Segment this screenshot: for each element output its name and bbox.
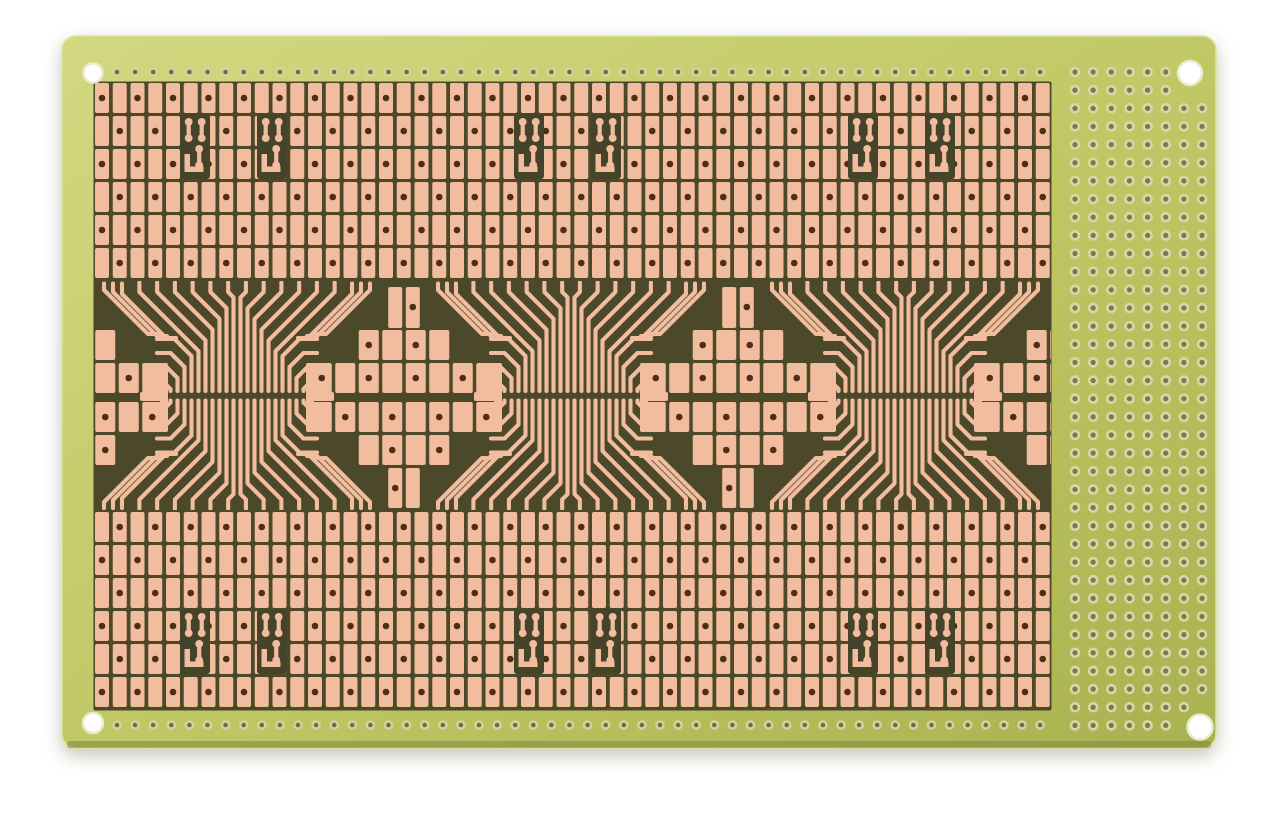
perf-pad-hole (1145, 596, 1150, 601)
pad-drill-hole (383, 161, 390, 168)
perf-pad-hole (1145, 723, 1150, 728)
pad-drill-hole (699, 375, 706, 382)
perf-pad-hole (1091, 269, 1096, 274)
solder-pad (326, 545, 340, 575)
pad-drill-hole (418, 227, 425, 234)
pad-drill-hole (276, 689, 283, 696)
pad-drill-hole (318, 375, 325, 382)
edge-pad-hole (965, 70, 970, 75)
pad-drill-hole (347, 227, 354, 234)
solder-pad (929, 83, 943, 113)
solder-pad (983, 512, 997, 542)
perf-pad-hole (1091, 541, 1096, 546)
solder-pad (894, 215, 908, 245)
sot23-footprint (591, 609, 621, 674)
solder-pad (947, 512, 961, 542)
pad-drill-hole (933, 590, 940, 597)
pad-drill-hole (400, 524, 407, 531)
pad-drill-hole (631, 95, 638, 102)
solder-pad (95, 578, 109, 608)
pad-drill-hole (454, 227, 461, 234)
pad-drill-hole (152, 128, 159, 135)
solder-pad (308, 248, 322, 278)
perf-pad-hole (1163, 233, 1168, 238)
solder-pad (219, 83, 233, 113)
solder-pad (610, 545, 624, 575)
pad-drill-hole (471, 194, 478, 201)
perf-pad-hole (1127, 160, 1132, 165)
pad-drill-hole (649, 260, 656, 267)
solder-pad (663, 248, 677, 278)
perf-pad-hole (1072, 523, 1077, 528)
perf-pad-hole (1163, 596, 1168, 601)
pad-drill-hole (459, 375, 466, 382)
solder-pad (1000, 149, 1014, 179)
perf-pad-hole (1127, 723, 1132, 728)
solder-pad (237, 644, 251, 674)
pad-drill-hole (826, 128, 833, 135)
edge-pad-hole (1020, 70, 1025, 75)
pad-drill-hole (915, 161, 922, 168)
solder-pad (148, 611, 162, 641)
perf-pad-hole (1091, 559, 1096, 564)
solder-pad (521, 182, 535, 212)
pad-drill-hole (471, 524, 478, 531)
solder-pad (734, 182, 748, 212)
pad-drill-hole (31, 375, 38, 382)
solder-pad (699, 182, 713, 212)
pad-drill-hole (862, 260, 869, 267)
solder-pad (858, 677, 872, 707)
pad-drill-hole (365, 375, 372, 382)
perf-pad-hole (1091, 432, 1096, 437)
perf-pad-hole (1109, 88, 1114, 93)
pad-drill-hole (365, 656, 372, 663)
solder-pad (663, 116, 677, 146)
solder-pad (1018, 578, 1032, 608)
perf-pad-hole (1145, 650, 1150, 655)
perf-pad-hole (1163, 305, 1168, 310)
pad-drill-hole (170, 227, 177, 234)
pad-drill-hole (649, 128, 656, 135)
solder-pad (645, 545, 659, 575)
pad-drill-hole (312, 557, 319, 564)
perf-pad-hole (1091, 233, 1096, 238)
pad-drill-hole (793, 375, 800, 382)
solder-pad (397, 215, 411, 245)
pad-drill-hole (347, 689, 354, 696)
solder-pad (645, 677, 659, 707)
pad-drill-hole (826, 260, 833, 267)
pad-drill-hole (8, 414, 15, 421)
perf-pad-hole (1072, 632, 1077, 637)
pad-drill-hole (1010, 414, 1017, 421)
pad-drill-hole (746, 342, 753, 349)
pad-drill-hole (205, 95, 212, 102)
cluster-pad (25, 402, 45, 432)
perf-pad-hole (1072, 342, 1077, 347)
edge-pad-hole (368, 723, 373, 728)
solder-pad (894, 611, 908, 641)
pad-drill-hole (596, 689, 603, 696)
cluster-pad (429, 363, 449, 393)
perf-pad-hole (1145, 614, 1150, 619)
pad-drill-hole (507, 656, 514, 663)
solder-pad (539, 545, 553, 575)
solder-pad (823, 215, 837, 245)
solder-pad (131, 644, 145, 674)
perf-pad-hole (1072, 215, 1077, 220)
solder-pad (574, 149, 588, 179)
perf-pad-hole (1181, 251, 1186, 256)
sot23-footprint (180, 114, 210, 179)
edge-pad-hole (169, 70, 174, 75)
pad-drill-hole (791, 260, 798, 267)
pad-drill-hole (862, 524, 869, 531)
pad-drill-hole (170, 623, 177, 630)
pad-drill-hole (187, 590, 194, 597)
perf-pad-hole (1091, 215, 1096, 220)
perf-pad-hole (1091, 178, 1096, 183)
solder-pad (1036, 677, 1050, 707)
fanout-trace (0, 456, 27, 508)
cluster-pad (142, 363, 162, 393)
perf-pad-hole (1127, 360, 1132, 365)
pad-drill-hole (436, 194, 443, 201)
perf-pad-hole (1091, 88, 1096, 93)
perf-pad-hole (1127, 505, 1132, 510)
perf-pad-hole (1181, 287, 1186, 292)
cluster-pad (1027, 435, 1047, 465)
pad-drill-hole (968, 128, 975, 135)
perf-pad-hole (1109, 723, 1114, 728)
perf-pad-hole (1163, 578, 1168, 583)
solder-pad (361, 83, 375, 113)
edge-pad-hole (784, 723, 789, 728)
solder-pad (1000, 545, 1014, 575)
perf-pad-hole (1163, 196, 1168, 201)
pad-drill-hole (116, 590, 123, 597)
perf-pad-hole (1163, 414, 1168, 419)
pad-drill-hole (809, 95, 816, 102)
solder-pad (592, 182, 606, 212)
pad-drill-hole (578, 524, 585, 531)
pad-drill-hole (99, 689, 106, 696)
pad-drill-hole (613, 194, 620, 201)
solder-pad (592, 248, 606, 278)
perf-pad-hole (1127, 687, 1132, 692)
perf-pad-hole (1127, 287, 1132, 292)
perf-pad-hole (1181, 541, 1186, 546)
perf-pad-hole (1072, 106, 1077, 111)
pad-drill-hole (276, 95, 283, 102)
pad-drill-hole (454, 623, 461, 630)
solder-pad (574, 545, 588, 575)
solder-pad (965, 149, 979, 179)
perf-pad-hole (1109, 469, 1114, 474)
pad-drill-hole (489, 95, 496, 102)
pad-drill-hole (817, 414, 824, 421)
edge-pad-hole (314, 723, 319, 728)
pad-drill-hole (968, 656, 975, 663)
solder-pad (397, 545, 411, 575)
pad-drill-hole (738, 689, 745, 696)
perf-pad-hole (1091, 124, 1096, 129)
solder-pad (326, 149, 340, 179)
pad-drill-hole (329, 524, 336, 531)
pad-drill-hole (170, 95, 177, 102)
perf-pad-hole (1072, 487, 1077, 492)
solder-pad (1000, 677, 1014, 707)
pad-drill-hole (684, 656, 691, 663)
perf-pad-hole (1072, 596, 1077, 601)
pad-drill-hole (915, 227, 922, 234)
perf-pad-hole (1091, 723, 1096, 728)
pad-drill-hole (915, 557, 922, 564)
pad-drill-hole (205, 689, 212, 696)
solder-pad (663, 578, 677, 608)
edge-pad-hole (296, 70, 301, 75)
perf-pad-hole (1199, 287, 1204, 292)
perf-pad-hole (1145, 541, 1150, 546)
solder-pad (432, 83, 446, 113)
pad-drill-hole (826, 656, 833, 663)
pad-drill-hole (1022, 689, 1029, 696)
solder-pad (415, 644, 429, 674)
cluster-pad (406, 435, 426, 465)
pad-drill-hole (471, 128, 478, 135)
pad-drill-hole (223, 656, 230, 663)
solder-pad (397, 677, 411, 707)
perf-pad-hole (1145, 360, 1150, 365)
edge-pad-hole (404, 70, 409, 75)
solder-pad (983, 644, 997, 674)
pad-drill-hole (471, 260, 478, 267)
pad-drill-hole (862, 590, 869, 597)
pad-drill-hole (809, 623, 816, 630)
solder-pad (947, 182, 961, 212)
mounting-hole-top-right (1178, 61, 1202, 85)
solder-pad (255, 545, 269, 575)
cluster-pad (787, 402, 807, 432)
perf-pad-hole (1145, 160, 1150, 165)
perf-pad-hole (1181, 632, 1186, 637)
edge-pad-hole (1020, 723, 1025, 728)
pad-drill-hole (329, 128, 336, 135)
perf-pad-hole (1199, 178, 1204, 183)
solder-pad (858, 83, 872, 113)
pad-drill-hole (1004, 194, 1011, 201)
pad-drill-hole (773, 689, 780, 696)
perf-pad-hole (1109, 505, 1114, 510)
perf-pad-hole (1199, 541, 1204, 546)
pad-drill-hole (116, 194, 123, 201)
edge-pad-hole (477, 723, 482, 728)
perf-pad-hole (1109, 487, 1114, 492)
perf-pad-hole (1072, 178, 1077, 183)
pad-drill-hole (667, 227, 674, 234)
edge-pad-hole (929, 70, 934, 75)
cluster-pad (406, 402, 426, 432)
perf-pad-hole (1109, 414, 1114, 419)
pad-drill-hole (723, 447, 730, 454)
pad-drill-hole (667, 95, 674, 102)
solder-pad (344, 116, 358, 146)
pad-drill-hole (454, 161, 461, 168)
pad-drill-hole (773, 623, 780, 630)
edge-pad-hole (766, 723, 771, 728)
pad-drill-hole (205, 227, 212, 234)
solder-pad (273, 578, 287, 608)
perf-pad-hole (1163, 632, 1168, 637)
perf-pad-hole (1109, 632, 1114, 637)
solder-pad (610, 215, 624, 245)
perf-pad-hole (1127, 69, 1132, 74)
perf-pad-hole (1181, 614, 1186, 619)
sot23-footprint (848, 609, 878, 674)
pad-drill-hole (684, 260, 691, 267)
edge-pad-hole (241, 723, 246, 728)
perf-pad-hole (1072, 142, 1077, 147)
perf-pad-hole (1109, 69, 1114, 74)
perf-pad-hole (1127, 251, 1132, 256)
pad-drill-hole (436, 447, 443, 454)
edge-pad-hole (640, 70, 645, 75)
solder-pad (344, 182, 358, 212)
pad-drill-hole (933, 260, 940, 267)
perf-pad-hole (1091, 378, 1096, 383)
solder-pad (734, 116, 748, 146)
solder-pad (752, 611, 766, 641)
cluster-center-pad (388, 287, 402, 328)
pad-drill-hole (1022, 161, 1029, 168)
edge-pad-hole (730, 723, 735, 728)
perf-pad-hole (1127, 106, 1132, 111)
pad-drill-hole (596, 95, 603, 102)
perf-pad-hole (1199, 142, 1204, 147)
pad-drill-hole (1004, 590, 1011, 597)
cluster-pad (693, 402, 713, 432)
perf-pad-hole (1199, 596, 1204, 601)
pad-drill-hole (578, 194, 585, 201)
solder-pad (113, 215, 127, 245)
edge-pad-hole (947, 70, 952, 75)
solder-pad (574, 611, 588, 641)
pad-drill-hole (951, 227, 958, 234)
perf-pad-hole (1091, 342, 1096, 347)
solder-pad (237, 182, 251, 212)
pad-drill-hole (365, 260, 372, 267)
cluster-pad (25, 363, 45, 393)
solder-pad (148, 149, 162, 179)
pad-drill-hole (258, 260, 265, 267)
solder-pad (557, 116, 571, 146)
solder-pad (95, 182, 109, 212)
solder-pad (486, 578, 500, 608)
edge-pad-hole (513, 70, 518, 75)
pad-drill-hole (770, 414, 777, 421)
pad-drill-hole (329, 656, 336, 663)
pad-drill-hole (1022, 227, 1029, 234)
pad-drill-hole (454, 557, 461, 564)
pad-drill-hole (968, 590, 975, 597)
solder-pad (219, 545, 233, 575)
solder-pad (237, 578, 251, 608)
perf-pad-hole (1199, 215, 1204, 220)
perf-pad-hole (1163, 124, 1168, 129)
solder-pad (770, 116, 784, 146)
perf-pad-hole (1127, 451, 1132, 456)
solder-pad (361, 215, 375, 245)
pad-drill-hole (276, 227, 283, 234)
pad-drill-hole (1039, 128, 1046, 135)
cluster-pad (810, 363, 830, 393)
pad-drill-hole (746, 375, 753, 382)
perf-pad-hole (1181, 505, 1186, 510)
pad-drill-hole (542, 590, 549, 597)
solder-pad (876, 182, 890, 212)
perf-pad-hole (1163, 523, 1168, 528)
cluster-pad (763, 363, 783, 393)
pcb-board (0, 36, 1216, 748)
perf-pad-hole (1127, 705, 1132, 710)
cluster-pad (95, 330, 115, 360)
perf-pad-hole (1127, 578, 1132, 583)
pad-drill-hole (702, 623, 709, 630)
solder-pad (770, 182, 784, 212)
pad-drill-hole (152, 590, 159, 597)
solder-pad (468, 545, 482, 575)
pad-drill-hole (134, 227, 141, 234)
pad-drill-hole (542, 524, 549, 531)
perf-pad-hole (1163, 451, 1168, 456)
solder-pad (787, 677, 801, 707)
solder-pad (1018, 512, 1032, 542)
pad-drill-hole (542, 260, 549, 267)
perf-pad-hole (1199, 360, 1204, 365)
perf-pad-hole (1145, 196, 1150, 201)
perf-pad-hole (1163, 251, 1168, 256)
perf-pad-hole (1127, 614, 1132, 619)
fanout-trace (0, 458, 36, 508)
pad-drill-hole (613, 260, 620, 267)
pad-drill-hole (418, 689, 425, 696)
perf-pad-hole (1145, 88, 1150, 93)
solder-pad (432, 149, 446, 179)
edge-pad-hole (748, 70, 753, 75)
cluster-edge-strip (160, 363, 168, 432)
pad-drill-hole (312, 95, 319, 102)
perf-pad-hole (1145, 269, 1150, 274)
perf-pad-hole (1127, 142, 1132, 147)
perf-pad-hole (1163, 650, 1168, 655)
pad-drill-hole (809, 689, 816, 696)
pad-drill-hole (738, 227, 745, 234)
pad-drill-hole (1004, 524, 1011, 531)
perf-pad-hole (1109, 160, 1114, 165)
edge-pad-hole (223, 723, 228, 728)
pad-drill-hole (436, 260, 443, 267)
pad-drill-hole (560, 95, 567, 102)
solder-pad (344, 578, 358, 608)
solder-pad (947, 578, 961, 608)
cluster-center-pad (722, 287, 736, 328)
perf-pad-hole (1199, 578, 1204, 583)
pad-drill-hole (720, 128, 727, 135)
solder-pad (681, 215, 695, 245)
solder-pad (787, 545, 801, 575)
solder-pad (95, 116, 109, 146)
